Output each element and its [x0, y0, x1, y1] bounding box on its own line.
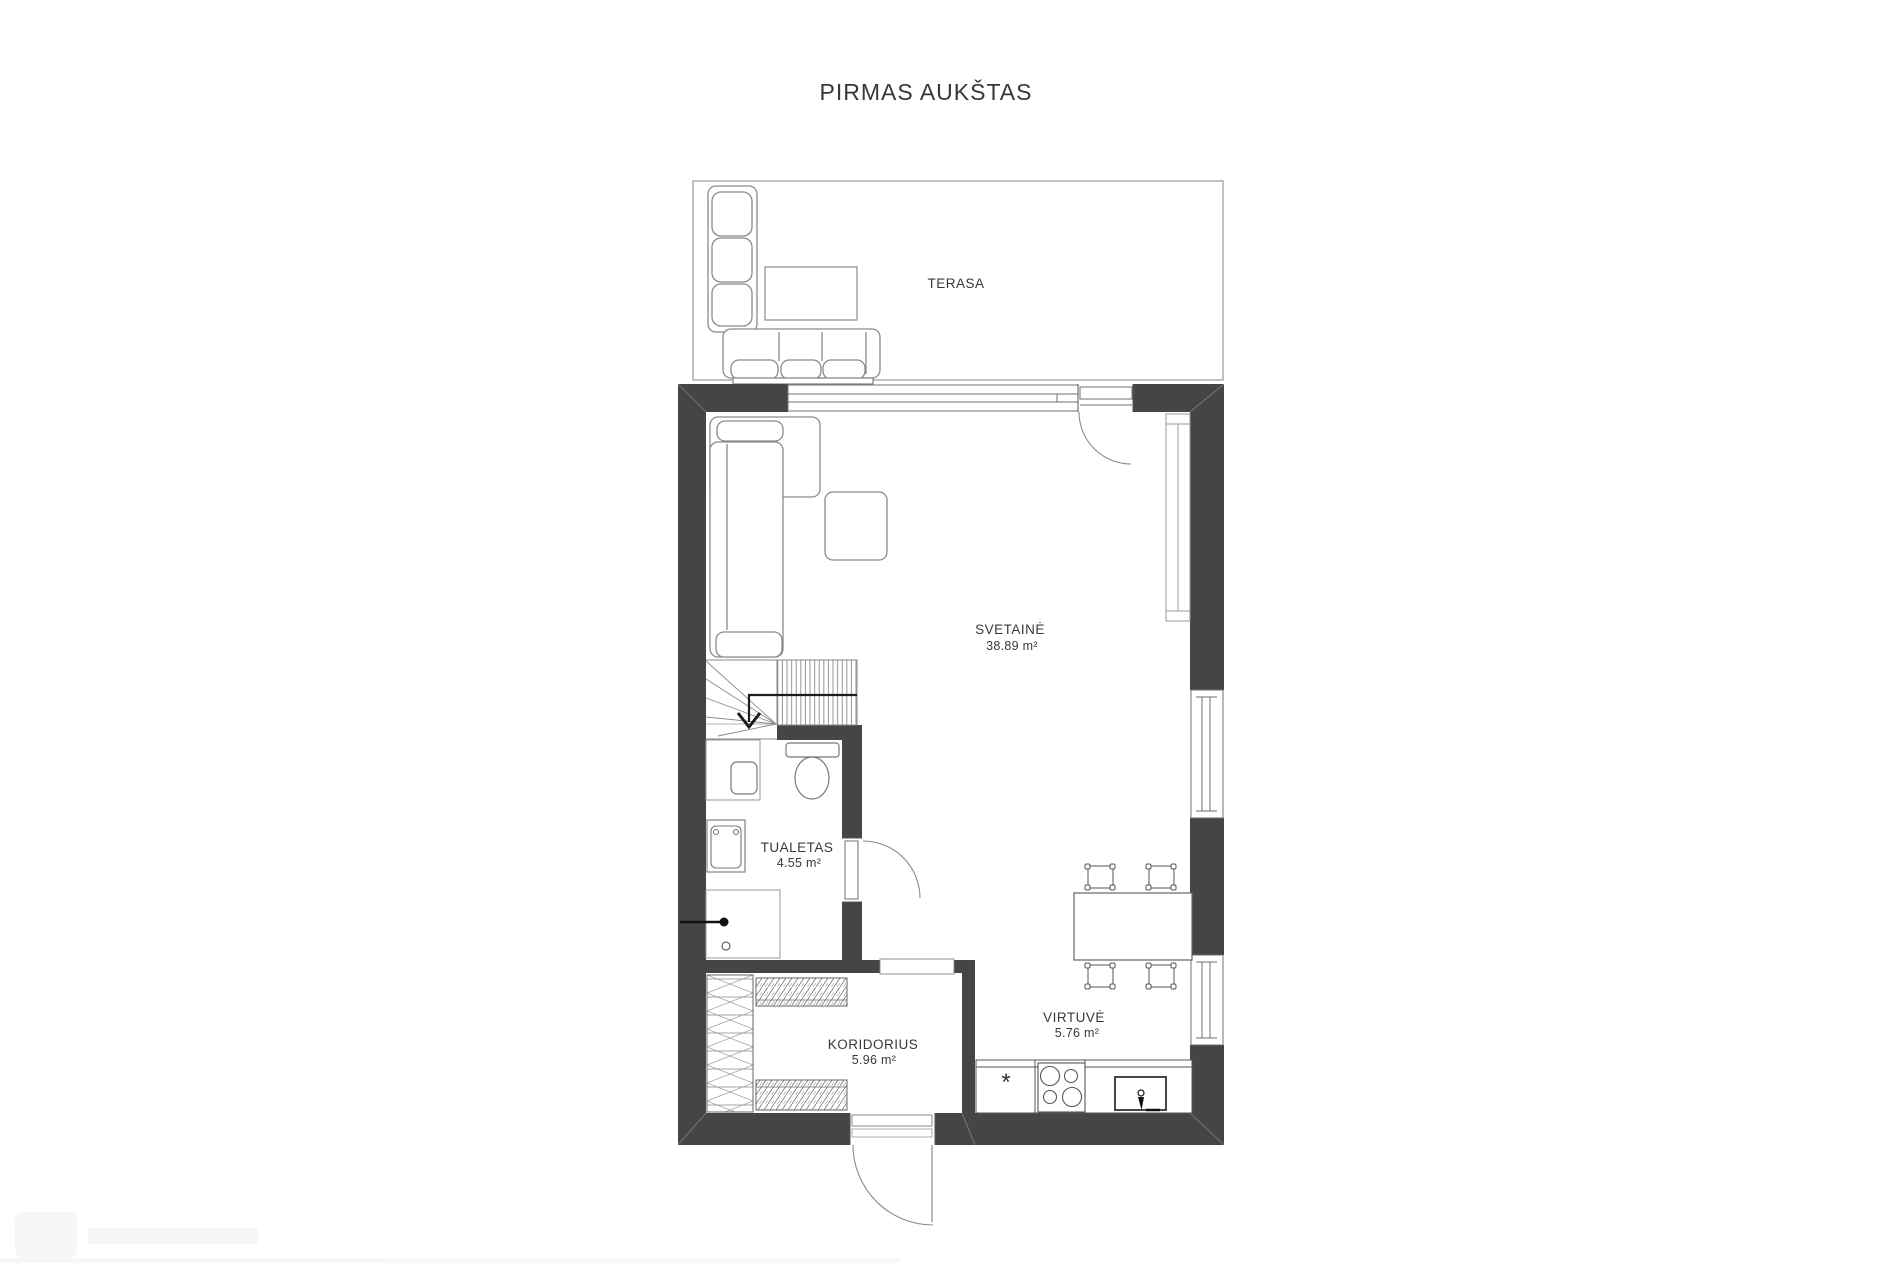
wall-right-middle	[1190, 818, 1224, 955]
dining-table	[1074, 893, 1192, 960]
terrace-label: TERASA	[927, 276, 984, 291]
chair	[1146, 963, 1176, 989]
wall-corridor-top-left	[706, 960, 880, 973]
wall-stairs-toilet	[777, 725, 862, 740]
stairs-treads	[777, 660, 857, 725]
corridor-passage	[880, 959, 954, 974]
washbasin	[706, 740, 760, 800]
kitchen-sink	[1115, 1077, 1166, 1110]
corridor-label: KORIDORIUS	[828, 1037, 919, 1052]
window-top	[788, 385, 1078, 411]
floor-plan-page: PIRMAS AUKŠTAS TERASA	[0, 0, 1900, 1267]
chair	[1085, 864, 1115, 890]
window-right-upper	[1191, 690, 1223, 818]
wardrobe	[707, 975, 753, 1112]
living-room-area: 38.89 m²	[986, 639, 1038, 653]
terrace: TERASA	[693, 181, 1223, 384]
terrace-table	[765, 267, 857, 320]
kitchen-area: 5.76 m²	[1055, 1026, 1099, 1040]
wall-corridor-right	[962, 973, 975, 1113]
toilet-cabinet	[706, 890, 780, 958]
toilet-label: TUALETAS	[761, 840, 834, 855]
closet-shelf-top	[756, 978, 847, 1006]
window-right-lower	[1191, 955, 1223, 1045]
toilet-area: 4.55 m²	[777, 856, 821, 870]
wall-left	[678, 384, 706, 1145]
appliance-asterisk: *	[1001, 1069, 1010, 1096]
kitchen-label: VIRTUVĖ	[1043, 1010, 1105, 1025]
washing-machine	[707, 820, 745, 872]
wall-right-upper	[1190, 384, 1224, 690]
cooktop	[1038, 1063, 1085, 1112]
floor-plan-drawing: PIRMAS AUKŠTAS TERASA	[0, 0, 1900, 1267]
plan-title: PIRMAS AUKŠTAS	[820, 78, 1033, 105]
closet-shelf-bottom	[756, 1080, 847, 1110]
wall-bottom-left	[678, 1113, 850, 1145]
chair	[1085, 963, 1115, 989]
wall-toilet-upper	[842, 740, 862, 838]
living-room-label: SVETAINĖ	[975, 622, 1045, 637]
coffee-table	[825, 492, 887, 560]
chair	[1146, 864, 1176, 890]
radiator-strip	[1166, 414, 1190, 621]
wall-corridor-top-right	[954, 960, 975, 973]
wall-toilet-lower	[842, 902, 862, 962]
corridor-area: 5.96 m²	[852, 1053, 896, 1067]
wall-bottom-right	[935, 1113, 1224, 1145]
